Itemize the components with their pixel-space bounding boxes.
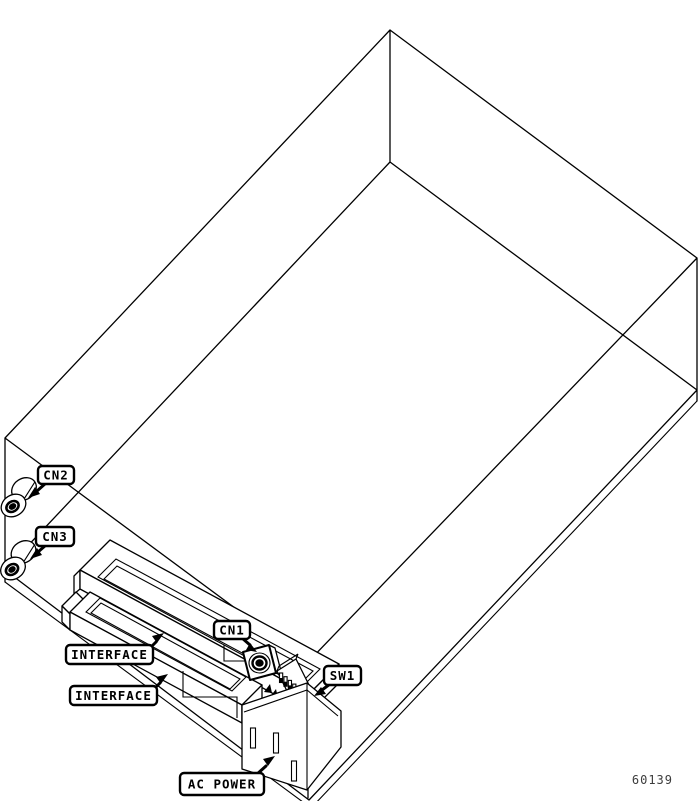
interface-lower-callout: INTERFACE <box>70 674 168 705</box>
dip-switch-2-handle <box>284 682 287 687</box>
slab-left-end-face <box>74 570 80 594</box>
dip-switch-1-handle <box>280 678 283 683</box>
figure-page: CN2 CN3 INTERFACE INTERFACE CN1 SW1 AC P… <box>0 0 700 801</box>
isometric-chassis-diagram: CN2 CN3 INTERFACE INTERFACE CN1 SW1 AC P… <box>0 0 700 801</box>
callout-label: SW1 <box>330 668 356 683</box>
callout-label: CN1 <box>219 623 245 638</box>
ac-outlet-slot-2 <box>274 733 279 753</box>
callout-label: CN2 <box>43 468 69 483</box>
callout-label: CN3 <box>42 529 68 544</box>
callout-label: AC POWER <box>188 777 256 792</box>
callout-label: INTERFACE <box>71 647 148 662</box>
ac-outlet-slot-1 <box>251 728 256 748</box>
cn3-connector <box>0 536 40 584</box>
cn2-connector <box>0 473 41 521</box>
figure-number: 60139 <box>632 773 673 787</box>
ac-outlet-slot-3 <box>292 761 297 781</box>
cn1-center-pin <box>255 659 263 667</box>
cn3-callout: CN3 <box>30 527 74 559</box>
callout-label: INTERFACE <box>75 688 152 703</box>
